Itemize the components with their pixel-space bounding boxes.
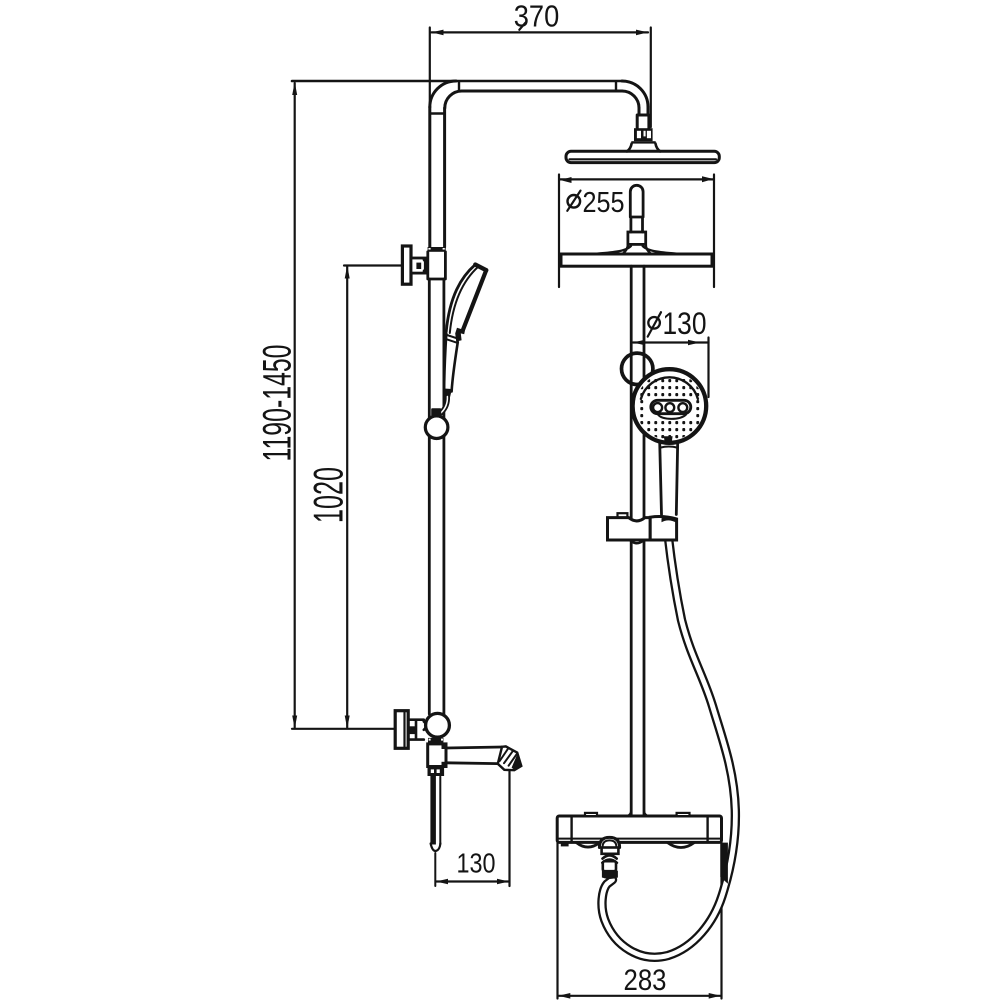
svg-text:283: 283 — [624, 964, 667, 997]
svg-text:1190-1450: 1190-1450 — [256, 345, 300, 462]
svg-text:1020: 1020 — [305, 467, 352, 523]
svg-text:130: 130 — [663, 305, 707, 341]
svg-text:130: 130 — [457, 847, 496, 878]
svg-text:255: 255 — [583, 187, 625, 219]
